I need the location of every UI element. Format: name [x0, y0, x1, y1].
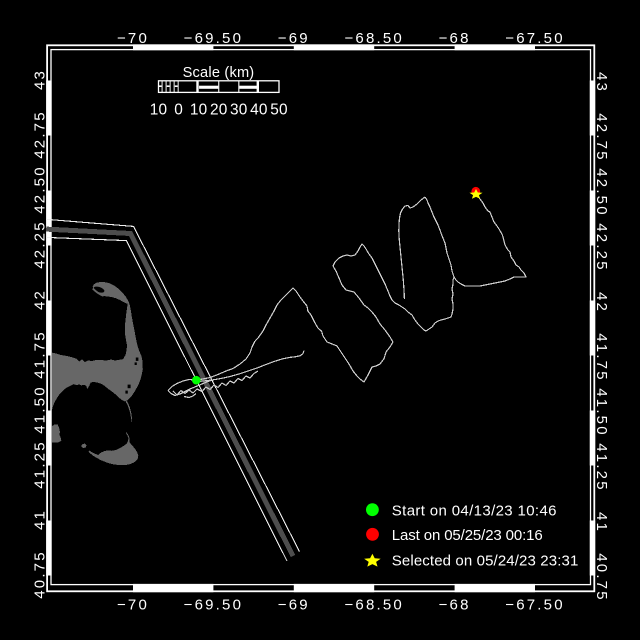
svg-text:−68.50: −68.50: [344, 30, 404, 47]
svg-text:42.25: 42.25: [593, 223, 610, 272]
svg-text:−70: −70: [117, 30, 149, 47]
svg-text:41.25: 41.25: [31, 440, 48, 489]
svg-text:−70: −70: [117, 596, 149, 613]
svg-text:−69: −69: [278, 30, 310, 47]
svg-text:43: 43: [593, 72, 610, 93]
svg-text:10: 10: [150, 102, 168, 119]
svg-text:40.75: 40.75: [31, 550, 48, 599]
svg-text:−68.50: −68.50: [344, 596, 404, 613]
svg-text:41: 41: [31, 509, 48, 530]
svg-text:42: 42: [31, 289, 48, 310]
svg-text:42.75: 42.75: [31, 110, 48, 159]
svg-text:41.50: 41.50: [593, 388, 610, 437]
svg-text:50: 50: [270, 102, 288, 119]
svg-text:41.50: 41.50: [31, 385, 48, 434]
svg-text:−69.50: −69.50: [184, 30, 244, 47]
svg-text:41: 41: [593, 512, 610, 533]
svg-text:−68: −68: [439, 596, 471, 613]
svg-text:−68: −68: [439, 30, 471, 47]
svg-text:Scale (km): Scale (km): [183, 65, 255, 81]
svg-text:10: 10: [190, 102, 208, 119]
svg-text:Last on 05/25/23 00:16: Last on 05/25/23 00:16: [392, 527, 543, 544]
svg-text:0: 0: [174, 102, 183, 119]
svg-text:Selected on 05/24/23 23:31: Selected on 05/24/23 23:31: [392, 552, 579, 569]
svg-text:41.25: 41.25: [593, 443, 610, 492]
svg-text:−69.50: −69.50: [184, 596, 244, 613]
svg-text:−67.50: −67.50: [505, 596, 565, 613]
svg-text:42.50: 42.50: [31, 165, 48, 214]
svg-text:30: 30: [230, 102, 248, 119]
svg-text:Start on 04/13/23 10:46: Start on 04/13/23 10:46: [392, 502, 557, 519]
svg-text:40: 40: [250, 102, 268, 119]
svg-text:42.50: 42.50: [593, 168, 610, 217]
svg-text:42.75: 42.75: [593, 113, 610, 162]
svg-text:41.75: 41.75: [593, 333, 610, 382]
svg-text:40.75: 40.75: [593, 553, 610, 602]
svg-text:41.75: 41.75: [31, 330, 48, 379]
svg-text:−67.50: −67.50: [505, 30, 565, 47]
svg-text:42.25: 42.25: [31, 220, 48, 269]
svg-text:42: 42: [593, 292, 610, 313]
svg-text:43: 43: [31, 69, 48, 90]
svg-text:−69: −69: [278, 596, 310, 613]
svg-text:20: 20: [210, 102, 228, 119]
